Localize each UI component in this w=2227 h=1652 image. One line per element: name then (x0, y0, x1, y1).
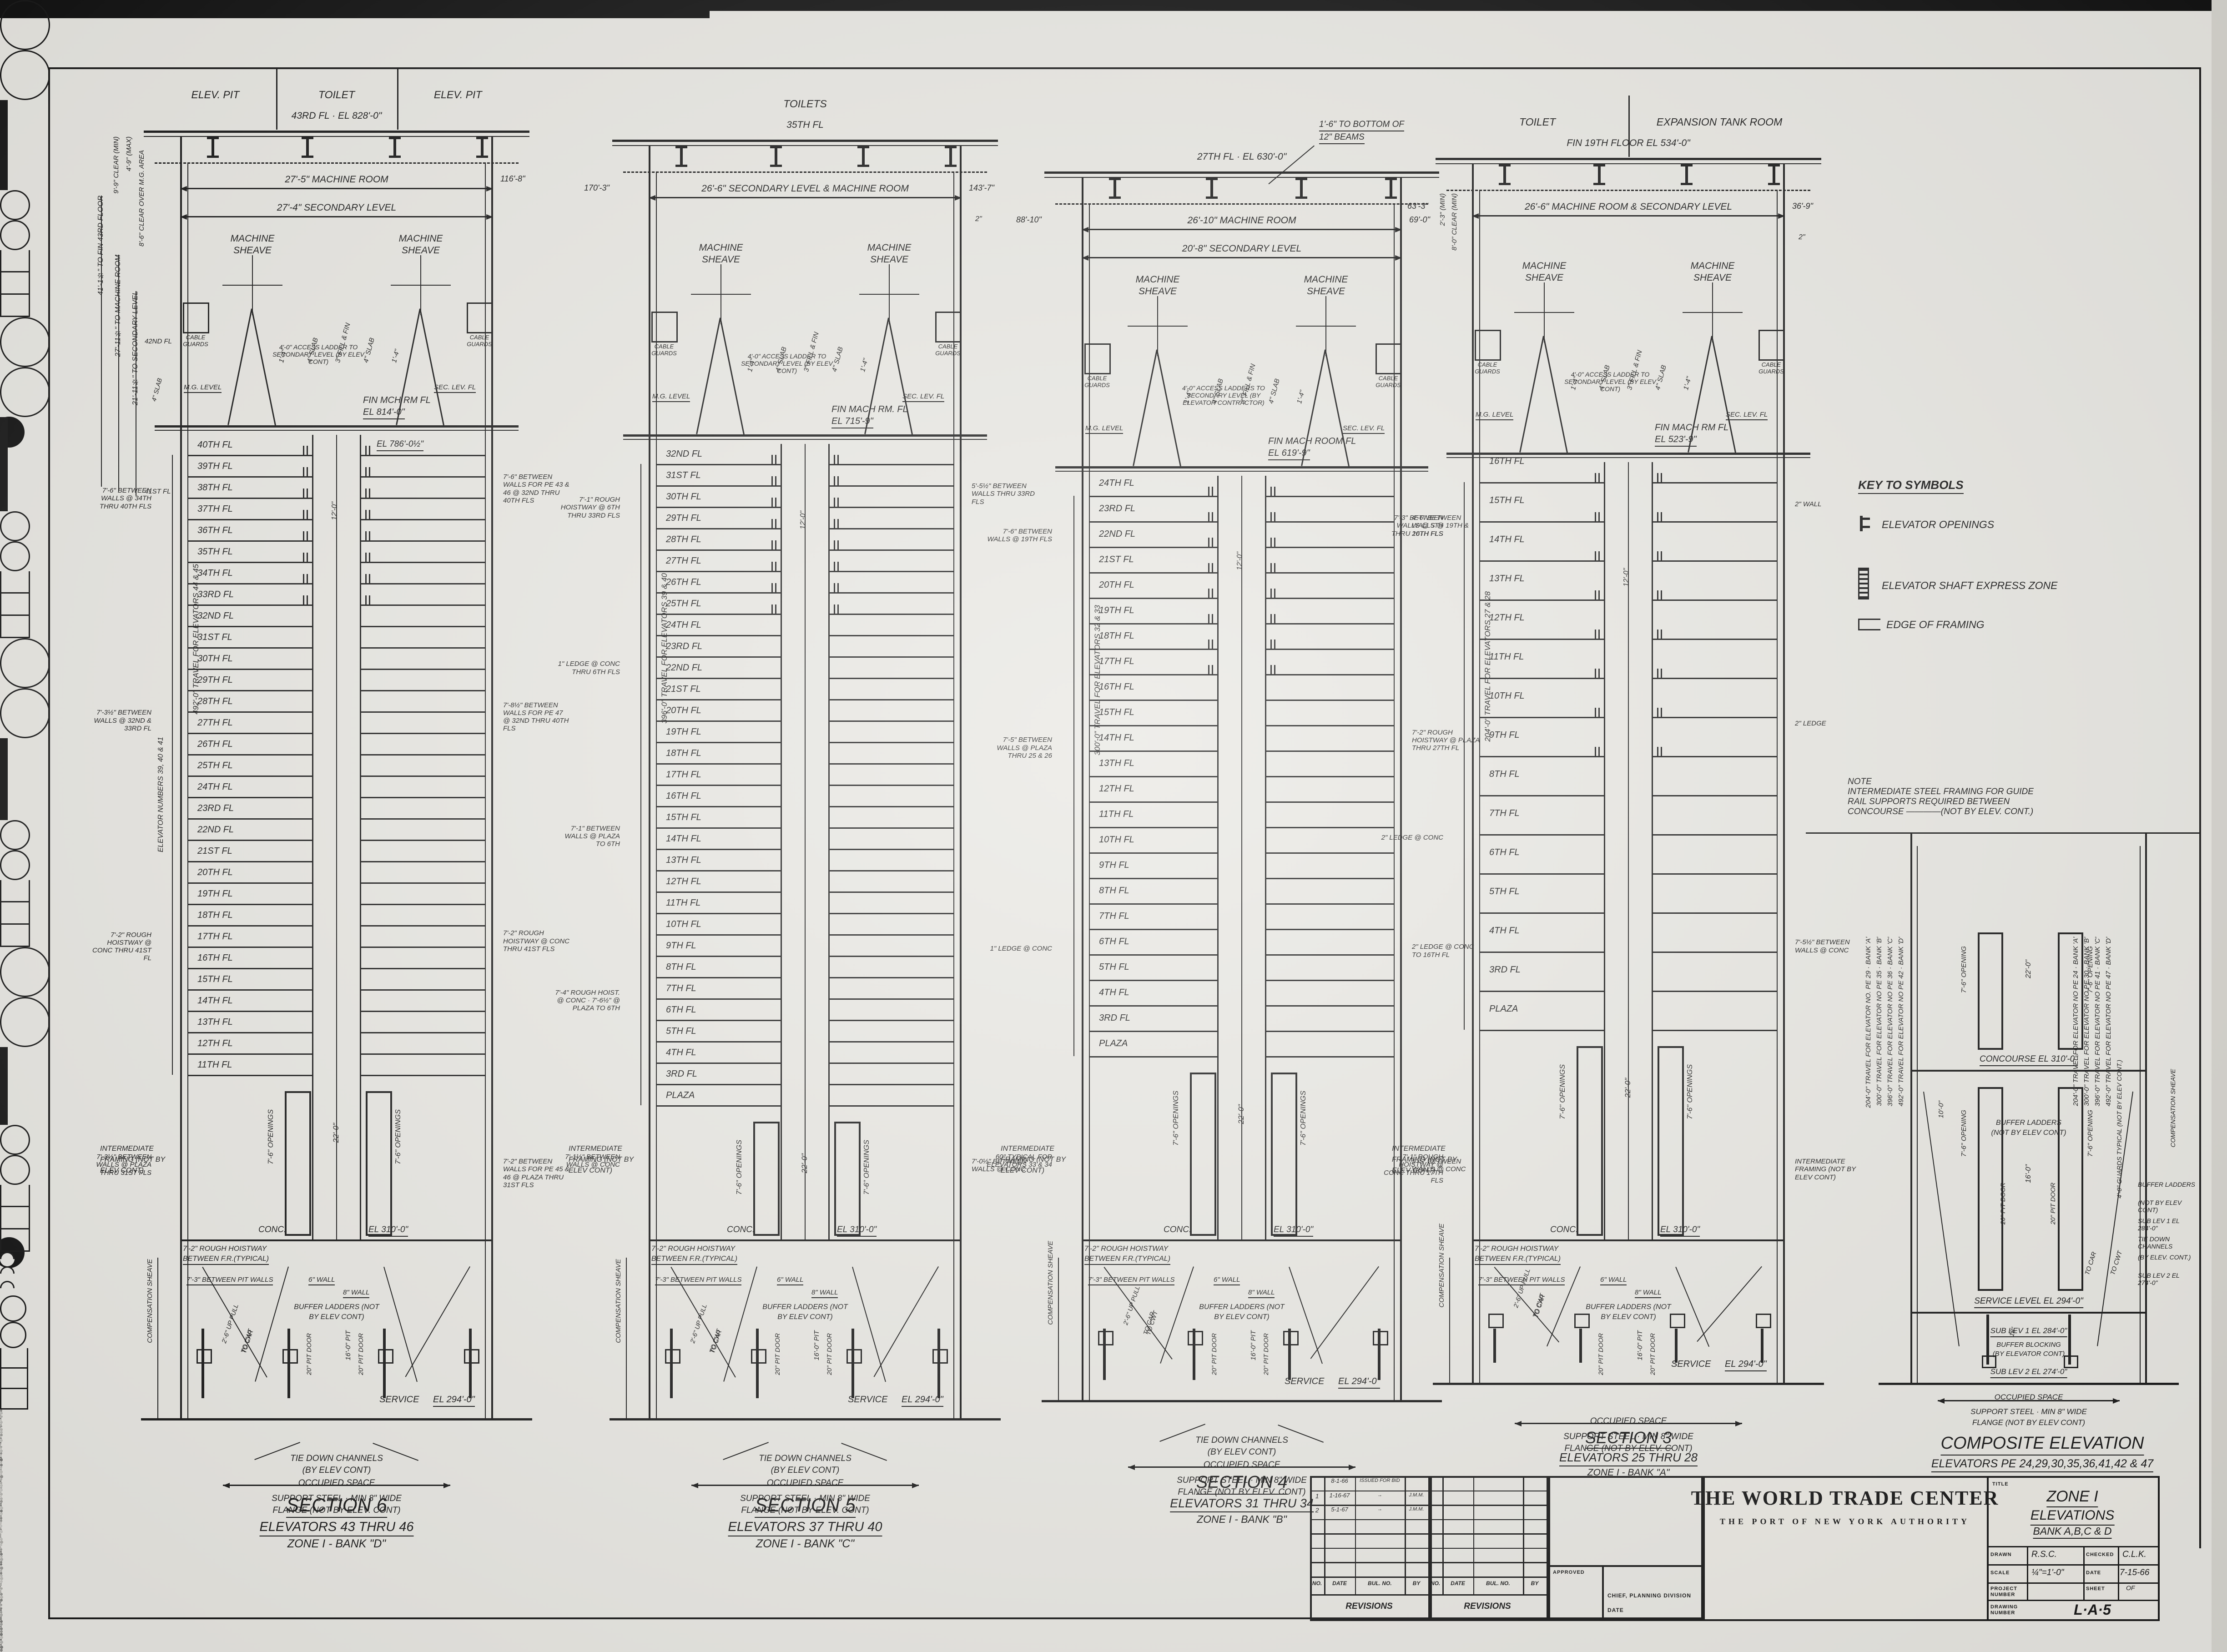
floor-label: 11TH FL (1489, 652, 1524, 662)
floor-line (1089, 801, 1217, 803)
floor-line (187, 647, 312, 649)
opening-tick (1661, 708, 1662, 717)
vertical-annotation: 2'-3" (MIN) (1439, 193, 1446, 226)
travel-annotation: 204'-0" TRAVEL FOR ELEVATOR NO. PE 29 · … (1865, 937, 1872, 1108)
vertical-annotation: 20" PIT DOOR (1597, 1333, 1604, 1375)
arrow-left-icon (691, 1483, 698, 1488)
dimension-label: 69'-0" (1409, 215, 1430, 225)
support-pedestal (0, 1369, 28, 1389)
opening-tick (775, 562, 776, 571)
floor-line (1266, 1056, 1395, 1058)
opening-tick (303, 467, 304, 476)
i-beam-icon (862, 146, 865, 167)
floor-label: 15TH FL (197, 974, 233, 985)
scan-speck (0, 1566, 3, 1570)
opening-tick (837, 498, 839, 507)
opening-tick (1274, 589, 1275, 598)
vertical-annotation: 10'-0" (1938, 1101, 1945, 1118)
rail-bracket (0, 1113, 8, 1117)
opening-tick (303, 489, 304, 498)
opening-tick (837, 583, 839, 592)
floor-line (1479, 560, 1604, 562)
floor-line (1653, 639, 1778, 640)
scan-speck (0, 1641, 3, 1644)
dimension-label: 27'-4" SECONDARY LEVEL (277, 202, 396, 213)
arrow-right-icon (1349, 1465, 1355, 1470)
compensation-sheave-label: COMPENSATION SHEAVE (1438, 1224, 1445, 1308)
hoist-cable (888, 318, 913, 434)
machine-floor-line (155, 430, 519, 431)
support-pedestal (0, 1348, 28, 1369)
rev-col-header: NO. (1431, 1581, 1440, 1587)
floor-line (830, 549, 954, 551)
dimension-label: 2" (1799, 233, 1805, 242)
rail-bracket (0, 503, 8, 507)
sec-level-label: SEC. LEV. FL (434, 383, 476, 393)
floor-label: 11TH FL (666, 898, 700, 908)
pit-base-line (1879, 1383, 2179, 1385)
pit-note: 6" WALL (308, 1276, 335, 1285)
hoist-cable (720, 318, 745, 434)
wall-dimension-note: INTERMEDIATE FRAMING (NOT BY ELEV CONT) (1795, 1158, 1863, 1181)
rev-row-line (1310, 1519, 1428, 1521)
floor-line (830, 485, 954, 487)
floor-line (1089, 598, 1217, 599)
pit-sheave-icon (0, 850, 30, 880)
opening-tick (834, 540, 835, 549)
pit-note: BETWEEN F.R.(TYPICAL) (183, 1255, 269, 1265)
rail-bracket (0, 1047, 8, 1051)
opening-tick (1274, 640, 1275, 649)
rail-bracket (0, 1088, 8, 1092)
pit-cable (1923, 1092, 1960, 1346)
arrow-right-icon (912, 1483, 919, 1488)
shaft-wall (180, 136, 182, 1418)
opening-tick (307, 446, 308, 455)
buffer-head (2064, 1355, 2078, 1368)
floor-line (830, 699, 954, 700)
tie-down-note: TIE DOWN CHANNELS (1195, 1435, 1288, 1445)
section-zone-label: ZONE I - BANK "A" (1587, 1467, 1670, 1478)
floor-line (1653, 795, 1778, 796)
dimension-label: 26'-6" MACHINE ROOM & SECONDARY LEVEL (1525, 201, 1732, 212)
wall-dimension-note: 7'-1" BETWEEN WALLS @ PLAZA TO 6TH (554, 825, 620, 848)
opening-tick (1657, 473, 1658, 482)
concourse-elevation: EL 310'-0" (1274, 1225, 1313, 1237)
floor-label: 23RD FL (197, 803, 234, 814)
cable-guards-label: CABLE GUARDS (1374, 375, 1403, 389)
floor-line (187, 1053, 312, 1055)
machine-sheave-icon (0, 947, 50, 997)
travel-annotation: 204'-0" TRAVEL FOR ELEVATORS 27 & 28 (1484, 591, 1491, 742)
floor-line (1089, 1005, 1217, 1007)
shaft-rail (953, 171, 954, 1418)
floor-line (1653, 834, 1778, 836)
floor-line (656, 913, 781, 914)
opening-tick (834, 498, 835, 507)
machine-floor-label: FIN MACH ROOM FL (1268, 436, 1356, 447)
opening-tick (1270, 538, 1272, 547)
i-beam-icon (1499, 164, 1511, 166)
floor-label: 18TH FL (197, 910, 233, 921)
floor-label: 5TH FL (666, 1026, 696, 1037)
concourse-elevation: EL 310'-0" (1660, 1225, 1700, 1237)
floor-line (830, 891, 954, 893)
floor-elevation-label: 27TH FL · EL 630'-0" (1197, 151, 1286, 162)
mg-level-label: M.G. LEVEL (184, 383, 222, 393)
i-beam-icon (476, 156, 488, 158)
wall-dimension-note: 7'-5½" BETWEEN WALLS @ CONC (1795, 938, 1863, 954)
sheave-axis (252, 255, 253, 315)
rail-bracket (0, 100, 8, 104)
pit-cable (2097, 1092, 2133, 1346)
floor-line (1479, 912, 1604, 914)
rev-bulletin: → (1377, 1492, 1382, 1498)
wall-dimension-note: 5'-5½" BETWEEN WALLS THRU 33RD FLS (972, 482, 1040, 506)
center-divider (360, 435, 361, 1239)
floor-label: 3RD FL (1099, 1013, 1130, 1023)
floor-line (361, 583, 486, 584)
pit-note: 2'-6" UP PULL (220, 1303, 240, 1344)
rail-bracket (0, 507, 8, 511)
opening-tick (775, 476, 776, 485)
opening-tick (837, 604, 839, 614)
floor-label: 15TH FL (666, 812, 701, 823)
floor-line (187, 519, 312, 520)
vertical-annotation: 7'-6" OPENINGS (736, 1140, 743, 1195)
floor-line (1089, 1031, 1217, 1032)
drawing-layer: ELEV. PITTOILETELEV. PIT43RD FL · EL 828… (0, 0, 2227, 1652)
floor-label: 6TH FL (1489, 847, 1520, 858)
rev-row-line (1428, 1576, 1547, 1578)
rail-bracket (0, 1068, 8, 1072)
rail-bracket (0, 1059, 8, 1063)
rail-bracket (0, 133, 8, 137)
floor-line (361, 989, 486, 991)
rail-bracket (0, 450, 8, 454)
opening-tick (1661, 473, 1662, 482)
top-slab (1044, 177, 1439, 178)
opening-tick (365, 489, 367, 498)
floor-label: 20TH FL (666, 705, 701, 716)
opening-tick (1598, 512, 1600, 521)
machine-sheave-icon (0, 688, 50, 738)
opening-tick (775, 519, 776, 528)
floor-line (830, 1041, 954, 1043)
top-slab (1044, 171, 1439, 174)
floor-line (830, 742, 954, 743)
floor-label: 7TH FL (1099, 911, 1129, 922)
vertical-annotation: 22'-0" (332, 1123, 340, 1143)
vertical-annotation: 22'-0" (1237, 1104, 1245, 1124)
opening-tick (775, 583, 776, 592)
rail-bracket (0, 1092, 8, 1096)
machine-sheave-label: SHEAVE (702, 254, 740, 265)
floor-line (656, 507, 781, 508)
machine-sheave-label: MACHINE (699, 242, 743, 253)
pit-note: 6" WALL (1214, 1276, 1240, 1285)
cable-guard-box (935, 312, 962, 342)
i-beam-icon (1109, 178, 1121, 180)
guide-rail (1073, 496, 1074, 1056)
floor-line (1653, 756, 1778, 757)
floor-line (361, 818, 486, 820)
dimension-label: 63'-3" (1407, 201, 1428, 211)
machine-sheave-icon (0, 317, 50, 367)
vertical-annotation: 12'-0" (800, 511, 807, 529)
rail-bracket (0, 125, 8, 129)
floor-label: 27TH FL (666, 556, 701, 566)
floor-line (656, 742, 781, 743)
floor-label: 6TH FL (1099, 937, 1129, 947)
pit-sheave-icon (0, 1155, 30, 1185)
service-elevation: EL 294'-0" (433, 1395, 475, 1407)
vertical-annotation: 7'-6" OPENINGS (395, 1109, 402, 1164)
floor-label: 13TH FL (666, 855, 701, 866)
concourse-elevation: EL 310'-0" (368, 1225, 408, 1237)
rail-bracket (0, 755, 8, 759)
access-ladder-note: 4'-0" ACCESS LADDER TO SECONDARY LEVEL (… (735, 353, 839, 374)
i-beam-icon (1593, 183, 1605, 185)
opening-tick (369, 489, 370, 498)
machine-floor-line (1055, 471, 1428, 472)
floor-line (1266, 598, 1395, 599)
opening-tick (1208, 665, 1209, 674)
floor-line (1266, 878, 1395, 879)
hoist-cable (252, 309, 276, 425)
concourse-label: CONC. (1164, 1225, 1191, 1235)
opening-tick (1661, 590, 1662, 599)
intermediate-framing-note: ELEV CONT) (1001, 1167, 1044, 1175)
opening-tick (369, 531, 370, 540)
opening-tick (303, 531, 304, 540)
opening-tick (1598, 669, 1600, 678)
machine-sheave-icon (0, 367, 50, 417)
floor-label: 13TH FL (1099, 758, 1134, 769)
opening-tick (303, 510, 304, 519)
opening-tick (1208, 538, 1209, 547)
opening-tick (1274, 512, 1275, 521)
rev-row-line (1428, 1491, 1547, 1492)
opening-tick (1270, 487, 1272, 496)
floor-label: 16TH FL (197, 953, 233, 963)
vertical-annotation: 20" PIT DOOR (826, 1333, 832, 1375)
floor-line (1479, 639, 1604, 640)
rail-bracket (0, 791, 8, 796)
floor-label: 5TH FL (1099, 962, 1129, 972)
opening-tick (1212, 538, 1213, 547)
floor-line (656, 1041, 781, 1043)
buffer-blocking-note: (BY ELEVATOR CONT) (1993, 1350, 2065, 1358)
i-beam-icon (302, 156, 313, 158)
intermediate-framing-note: INTERMEDIATE (569, 1145, 622, 1153)
opening-tick (775, 540, 776, 549)
section-subtitle: ELEVATORS 25 THRU 28 (1559, 1451, 1698, 1466)
floor-line (187, 925, 312, 927)
support-steel-note: FLANGE (NOT BY ELEV CONT) (1972, 1418, 2085, 1427)
floor-line (830, 635, 954, 636)
rail-bracket (0, 429, 8, 433)
floor-line (361, 840, 486, 841)
floor-label: 29TH FL (197, 675, 233, 685)
machine-floor-label: EL 619'-9" (1268, 448, 1310, 460)
rail-bracket (0, 796, 8, 800)
floor-line (361, 711, 486, 713)
dimension-line (649, 197, 962, 198)
scan-speck (0, 1633, 3, 1636)
opening-tick (369, 510, 370, 519)
i-beam-icon (680, 146, 683, 167)
machine-sheave-icon (0, 997, 50, 1047)
floor-label: 8TH FL (666, 962, 696, 972)
machine-sheave-label: MACHINE (1304, 274, 1348, 285)
support-pedestal (0, 1185, 30, 1207)
center-divider (1652, 462, 1653, 1239)
buffer-ladder-note: BUFFER LADDERS (NOT (1586, 1303, 1671, 1311)
pit-cable (852, 1267, 886, 1382)
travel-annotation: 492'-0" TRAVEL FOR ELEVATOR NO PE 42 · B… (1898, 937, 1905, 1106)
buffer-head (378, 1349, 393, 1364)
machine-sheave-label: MACHINE (399, 233, 443, 244)
rev-row-line (1428, 1594, 1547, 1596)
rail-bracket (0, 462, 8, 466)
floor-label: 9TH FL (1099, 860, 1129, 871)
rail-bracket (0, 108, 8, 112)
rail-bracket (0, 750, 8, 755)
rail-bracket (0, 446, 8, 450)
rail-bracket (0, 767, 8, 771)
slab-label: 1'-4" (390, 348, 401, 363)
buffer-head (1574, 1314, 1590, 1328)
opening-tick (365, 595, 367, 604)
opening-tick (1657, 590, 1658, 599)
opening-tick (365, 467, 367, 476)
center-divider (1604, 462, 1605, 1239)
vertical-annotation: 7'-6" OPENING (1960, 1110, 1967, 1157)
hoist-cable (420, 309, 444, 425)
rev-row-line (1310, 1491, 1428, 1492)
floor-line (1089, 725, 1217, 726)
floor-label: 24TH FL (1099, 478, 1134, 489)
pit-sheave-icon (0, 1295, 26, 1322)
opening-tick (365, 553, 367, 562)
floor-elevation-label: EL 786'-0½" (377, 439, 423, 451)
concourse-label: CONCOURSE EL 310'-0" (1980, 1054, 2078, 1066)
pit-margin-note: (BY ELEV. CONT.) (2138, 1254, 2196, 1261)
floor-line (1266, 801, 1395, 803)
floor-line (830, 656, 954, 658)
floor-line (830, 464, 954, 465)
rail-bracket (0, 1108, 8, 1113)
floor-line (656, 678, 781, 679)
opening-tick (365, 446, 367, 455)
section-zone-label: ZONE I - BANK "B" (1197, 1513, 1287, 1525)
rev-row-line (1428, 1519, 1547, 1521)
floor-line (187, 604, 312, 606)
floor-line (1479, 952, 1604, 953)
machine-floor-line (623, 439, 987, 440)
pit-cable (405, 1266, 470, 1377)
opening-tick (1274, 563, 1275, 572)
pit-cable (1289, 1267, 1323, 1364)
floor-line (361, 797, 486, 798)
machine-floor-line (1055, 466, 1428, 468)
buffer-ladder-note: BUFFER LADDERS (NOT (1199, 1303, 1285, 1311)
floor-line (1266, 521, 1395, 523)
top-slab (1436, 158, 1821, 160)
concourse-line (180, 1239, 493, 1241)
opening-tick (1270, 614, 1272, 623)
shaft-rail (2140, 846, 2141, 1383)
floor-line (1266, 623, 1395, 625)
rev-col-header: BY (1531, 1581, 1539, 1587)
floor-line (1089, 547, 1217, 548)
floor-line (830, 977, 954, 978)
opening-tick (1212, 640, 1213, 649)
floor-line (830, 592, 954, 594)
floor-label: 19TH FL (197, 889, 233, 899)
opening-tick (307, 510, 308, 519)
floor-line (1089, 954, 1217, 956)
floor-label: 42ND FL (145, 337, 172, 345)
intermediate-framing-note: FRAMING (NOT BY (569, 1156, 634, 1164)
floor-line (187, 562, 312, 563)
i-beam-icon (476, 137, 488, 139)
pit-sheave-icon (0, 820, 30, 850)
floor-line (830, 614, 954, 615)
floor-label: 23RD FL (666, 641, 702, 652)
pit-cable (873, 1266, 939, 1377)
floor-label: 14TH FL (1489, 534, 1525, 545)
floor-line (361, 904, 486, 905)
travel-annotation: 492'-0" TRAVEL FOR ELEVATOR NO PE 47 · B… (2105, 937, 2112, 1106)
i-beam-icon (1593, 164, 1605, 166)
blueprint-sheet: KEY TO SYMBOLS ELEVATOR OPENINGS ELEVATO… (0, 0, 2227, 1652)
service-level-label: SERVICE (1671, 1359, 1711, 1370)
scan-speck (0, 1553, 3, 1556)
rail-bracket (0, 425, 8, 429)
rail-bracket (0, 491, 8, 495)
floor-label: 29TH FL (666, 513, 701, 524)
i-beam-icon (775, 146, 777, 167)
opening-tick (307, 467, 308, 476)
support-pedestal (0, 1389, 28, 1410)
floor-line (187, 989, 312, 991)
buffer-head (282, 1349, 298, 1364)
vertical-annotation: 20" PIT DOOR (306, 1333, 312, 1375)
floor-line (830, 785, 954, 786)
section-subtitle: ELEVATORS 31 THRU 34 (1170, 1496, 1314, 1512)
opening-tick (1212, 512, 1213, 521)
floor-label: 17TH FL (1099, 656, 1134, 667)
opening-tick (775, 455, 776, 464)
buffer-head (751, 1349, 766, 1364)
floor-line (1089, 496, 1217, 497)
floor-label: 28TH FL (666, 534, 701, 545)
sheave-axis (1325, 296, 1326, 356)
machine-sheave-icon (0, 50, 50, 100)
floor-line (361, 1011, 486, 1012)
rev-row-line (1428, 1562, 1547, 1563)
floor-line (361, 861, 486, 862)
vertical-annotation: 16'-0" PIT (813, 1330, 820, 1360)
floor-line (1266, 547, 1395, 548)
floor-line (1089, 878, 1217, 879)
intermediate-framing-note: ELEV CONT) (100, 1167, 144, 1175)
room-label: TOILET (318, 89, 355, 101)
floor-label: 14TH FL (1099, 733, 1134, 743)
i-beam-icon (1385, 178, 1397, 180)
